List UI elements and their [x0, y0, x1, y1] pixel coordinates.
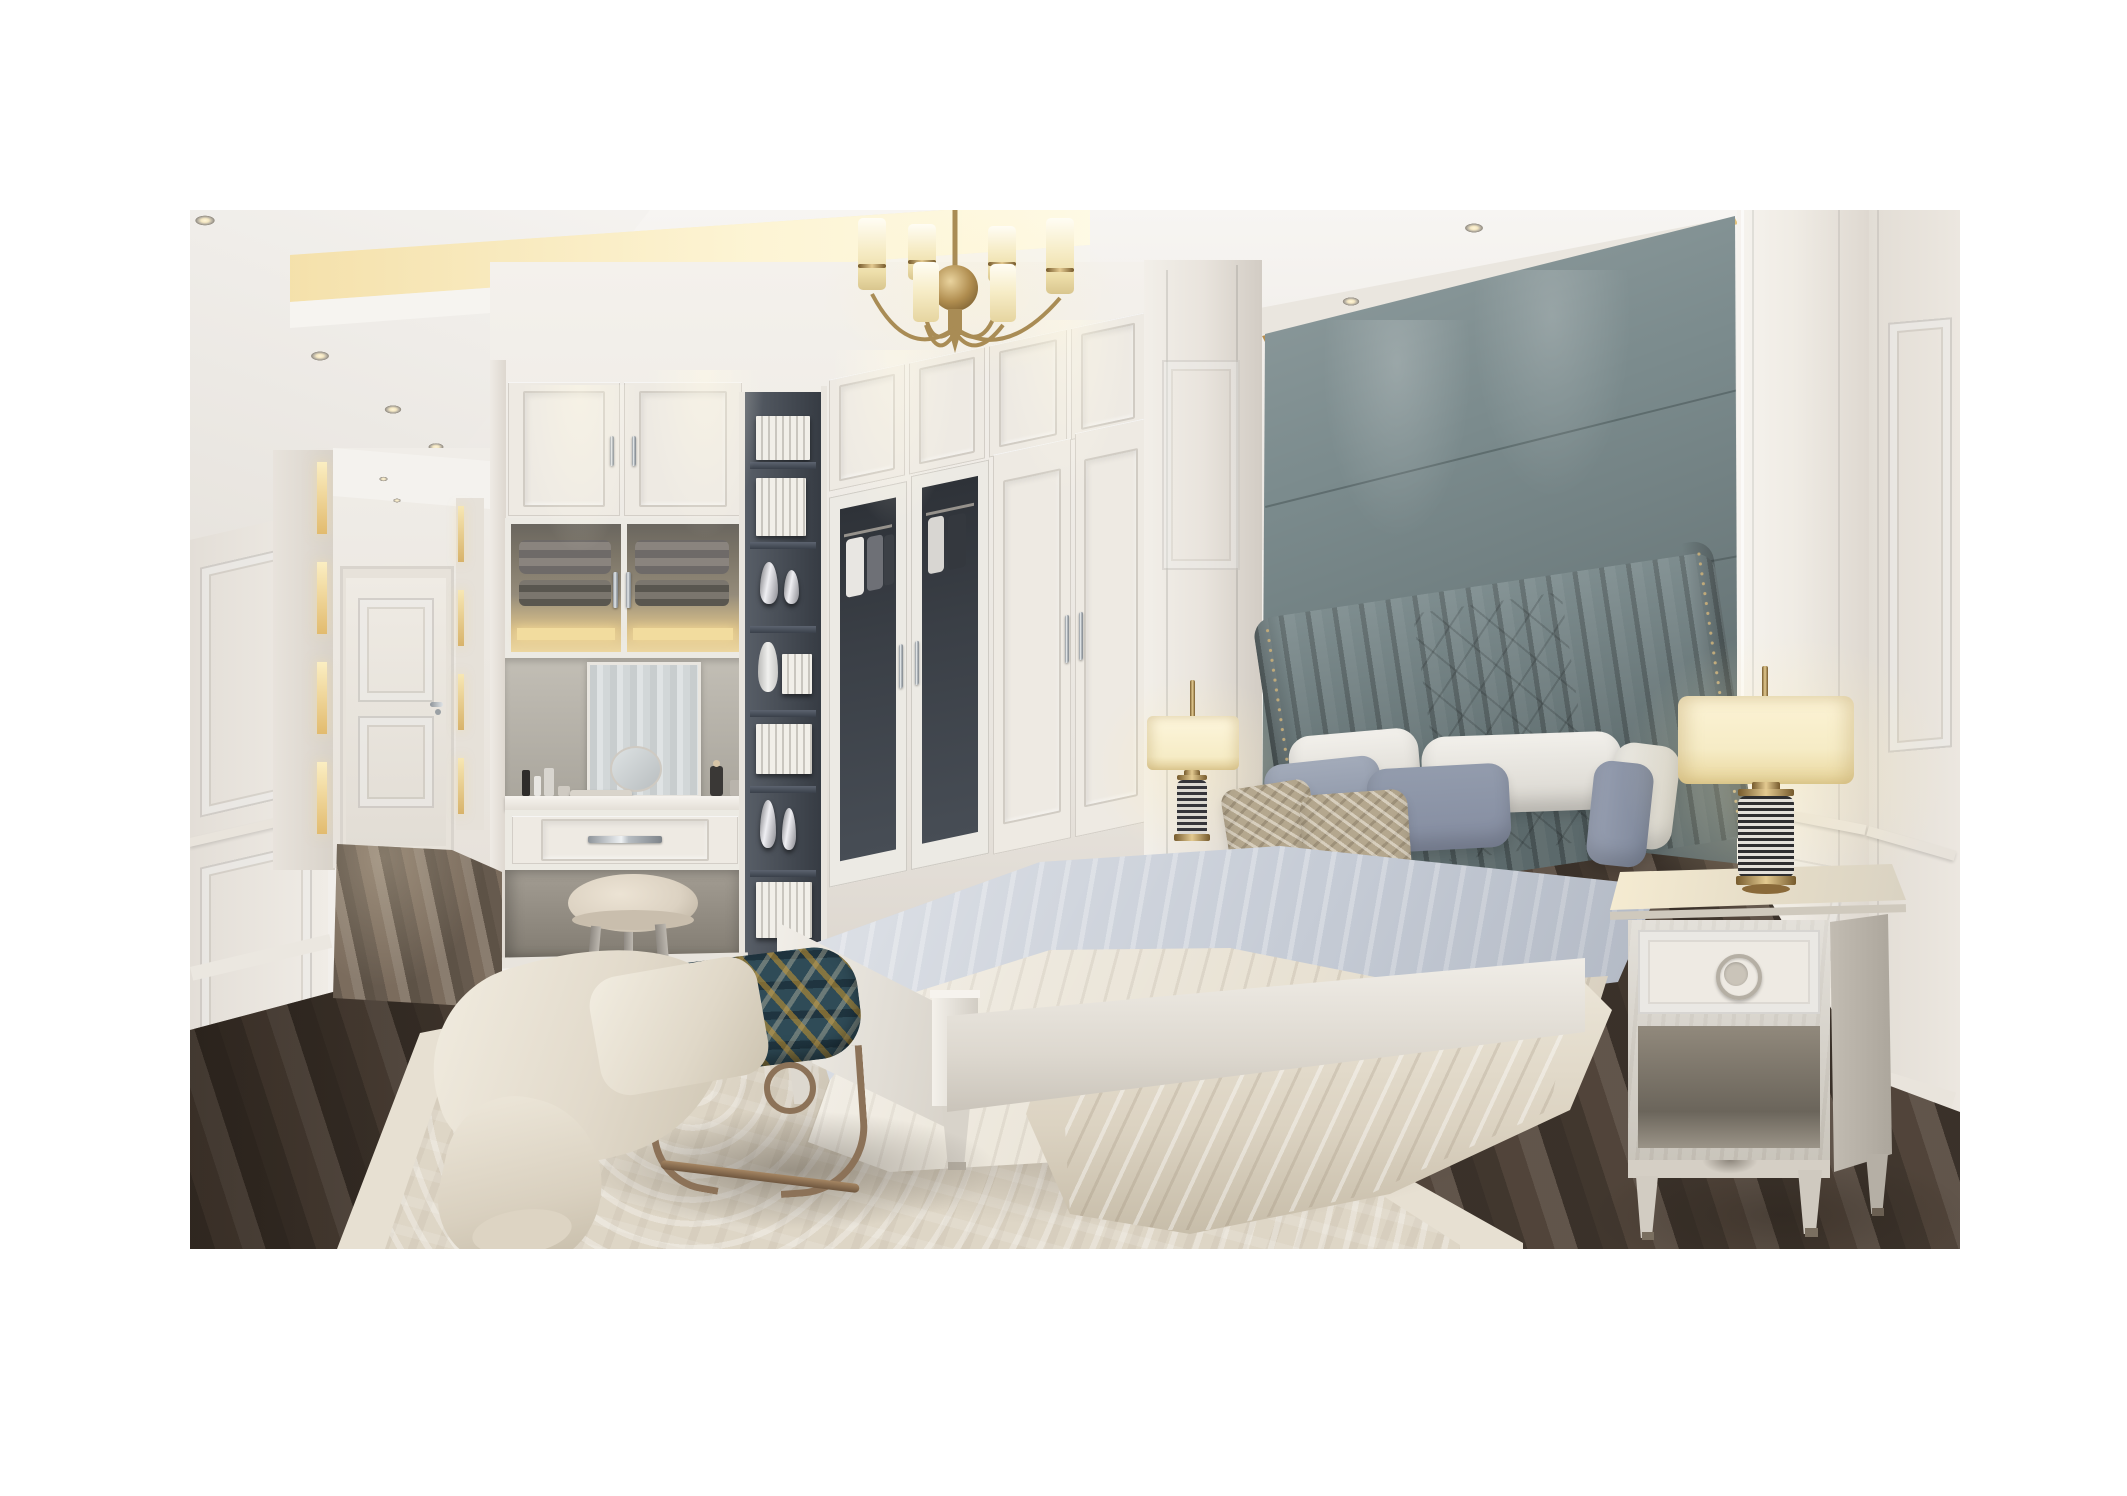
- hanging-shirt: [867, 534, 883, 591]
- drawer-handle-icon: [588, 836, 662, 843]
- folded-clothes: [635, 540, 729, 574]
- panel-light-wash: [1322, 320, 1472, 540]
- books: [756, 724, 812, 774]
- door-panel: [358, 598, 434, 702]
- wardrobe-handle-icon: [1079, 612, 1083, 661]
- nightstand-leg-cap: [1872, 1208, 1884, 1216]
- nightstand-leg-cap: [1805, 1228, 1818, 1237]
- niche-light-strip: [317, 762, 327, 834]
- chandelier-frame-icon: [790, 210, 1130, 400]
- chandelier-shade: [990, 264, 1016, 322]
- folded-clothes: [635, 580, 729, 606]
- hanging-shirt: [846, 536, 864, 598]
- tower-shelf: [750, 786, 816, 793]
- wardrobe-glass-door: [829, 481, 907, 888]
- cabinet-handle-icon: [626, 572, 631, 608]
- tower-shelf: [750, 870, 816, 877]
- folded-clothes: [519, 580, 611, 606]
- figurine-head: [713, 760, 720, 767]
- panel-light-wash: [1472, 270, 1632, 500]
- niche-light-strip: [458, 506, 464, 562]
- lamp-left-shade: [1147, 716, 1239, 770]
- door-handle-icon: [430, 702, 443, 707]
- shade-ring-icon: [1046, 268, 1074, 272]
- niche-light-strip: [317, 562, 327, 634]
- silver-vase: [760, 562, 778, 604]
- chandelier-shade: [913, 262, 939, 322]
- silver-vase: [782, 808, 796, 850]
- niche-light-strip: [458, 674, 464, 730]
- tower-shelf: [750, 626, 816, 633]
- books: [782, 654, 812, 694]
- cosmetics-pump-bottle: [544, 768, 554, 796]
- spotlight-wash: [520, 385, 640, 555]
- vanity-counter: [505, 796, 745, 810]
- hallway-downlight-icon: [392, 498, 402, 503]
- chandelier-finial: [950, 335, 960, 353]
- lamp-left-striped-body: [1177, 780, 1207, 836]
- lamp-right-topband: [1738, 789, 1794, 796]
- lamp-right-finial: [1762, 666, 1768, 700]
- lamp-right-shade: [1678, 696, 1854, 784]
- glass-cabinet-door: [627, 524, 739, 652]
- chandelier-shade: [1046, 218, 1074, 294]
- lit-niche-column: [273, 450, 335, 870]
- silver-vase: [784, 570, 799, 604]
- cosmetics-jar: [558, 786, 570, 796]
- lamp-right-base: [1742, 884, 1790, 894]
- downlight-icon: [382, 404, 404, 415]
- silver-vase: [760, 800, 776, 848]
- cosmetics-bottle: [534, 776, 541, 796]
- wardrobe-handle-icon: [915, 640, 919, 685]
- downlight-icon: [308, 350, 332, 362]
- downlight-icon: [192, 214, 218, 227]
- screenshot-canvas: [0, 0, 2127, 1496]
- glass-pane: [922, 476, 978, 844]
- door-rosette-icon: [435, 709, 441, 715]
- hallway-right-lit-column: [456, 498, 484, 830]
- door-panel: [358, 716, 434, 808]
- downlight-icon: [1340, 296, 1362, 307]
- tower-shelf: [750, 542, 816, 549]
- niche-light-strip: [458, 590, 464, 646]
- niche-light-strip: [317, 462, 327, 534]
- wardrobe-handle-icon: [1065, 615, 1069, 664]
- round-table-mirror: [610, 746, 662, 792]
- cabinet-light-strip: [633, 628, 733, 640]
- shade-ring-icon: [858, 264, 886, 268]
- figurine: [710, 766, 723, 796]
- white-vase: [758, 642, 778, 692]
- cabinet-light-strip: [517, 628, 615, 640]
- nightstand-leg-cap: [1642, 1232, 1654, 1240]
- hallway-downlight-icon: [378, 476, 389, 482]
- nightstand-right-side: [1830, 914, 1892, 1176]
- cosmetics-bottle: [522, 770, 530, 796]
- bedroom-photo: [190, 210, 1960, 1249]
- tower-shelf: [750, 710, 816, 717]
- drawer-ring-backplate: [1724, 962, 1748, 986]
- niche-light-strip: [317, 662, 327, 734]
- chandelier-shade: [858, 218, 886, 290]
- hanging-shirt: [884, 534, 894, 586]
- niche-light-strip: [458, 758, 464, 814]
- cabinet-handle-icon: [613, 572, 618, 608]
- hallway-door: [346, 578, 446, 846]
- footboard-post-cap: [930, 990, 980, 998]
- lamp-left-base: [1174, 834, 1210, 841]
- spotlight-wash: [645, 370, 765, 540]
- lamp-right-striped-body: [1738, 796, 1794, 878]
- wardrobe-tall-door: [993, 438, 1071, 855]
- pilaster-panel: [1162, 360, 1240, 570]
- wardrobe-handle-icon: [899, 644, 903, 689]
- nightstand-open-shelf: [1638, 1026, 1820, 1148]
- glass-pane: [840, 497, 896, 861]
- downlight-icon: [1462, 222, 1486, 234]
- apron-arch-shadow: [1702, 1160, 1758, 1174]
